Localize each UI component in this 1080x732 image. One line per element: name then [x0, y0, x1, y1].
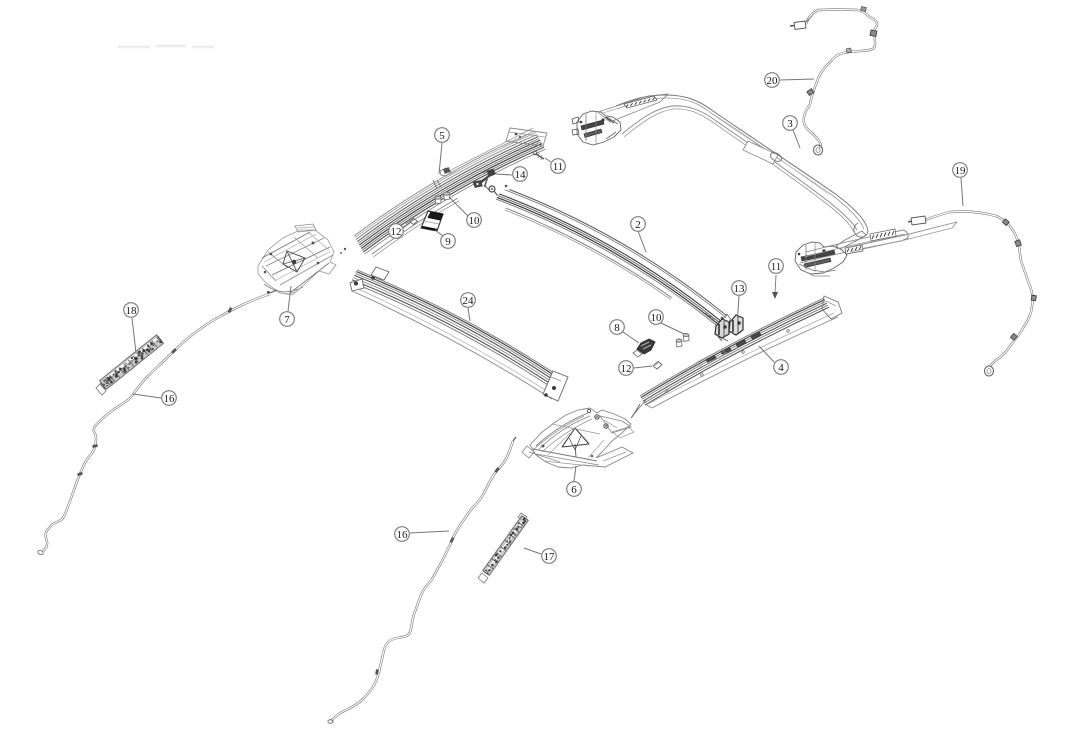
svg-text:16: 16 [397, 529, 409, 541]
svg-text:10: 10 [469, 215, 481, 227]
svg-text:24: 24 [463, 295, 475, 307]
svg-text:8: 8 [614, 322, 620, 334]
svg-text:4: 4 [778, 362, 784, 374]
svg-text:11: 11 [553, 161, 564, 173]
svg-text:14: 14 [515, 169, 527, 181]
svg-text:3: 3 [787, 118, 793, 130]
svg-text:11: 11 [771, 261, 782, 273]
svg-text:19: 19 [955, 165, 967, 177]
svg-text:13: 13 [734, 283, 746, 295]
svg-text:5: 5 [439, 130, 445, 142]
svg-text:12: 12 [621, 363, 632, 375]
svg-text:12: 12 [391, 226, 402, 238]
svg-text:6: 6 [571, 484, 577, 496]
svg-text:9: 9 [445, 236, 451, 248]
svg-text:20: 20 [767, 75, 779, 87]
svg-text:17: 17 [544, 551, 556, 563]
svg-text:18: 18 [126, 305, 138, 317]
svg-text:7: 7 [284, 314, 290, 326]
svg-text:10: 10 [651, 312, 663, 324]
svg-text:16: 16 [164, 393, 176, 405]
svg-text:2: 2 [635, 219, 641, 231]
